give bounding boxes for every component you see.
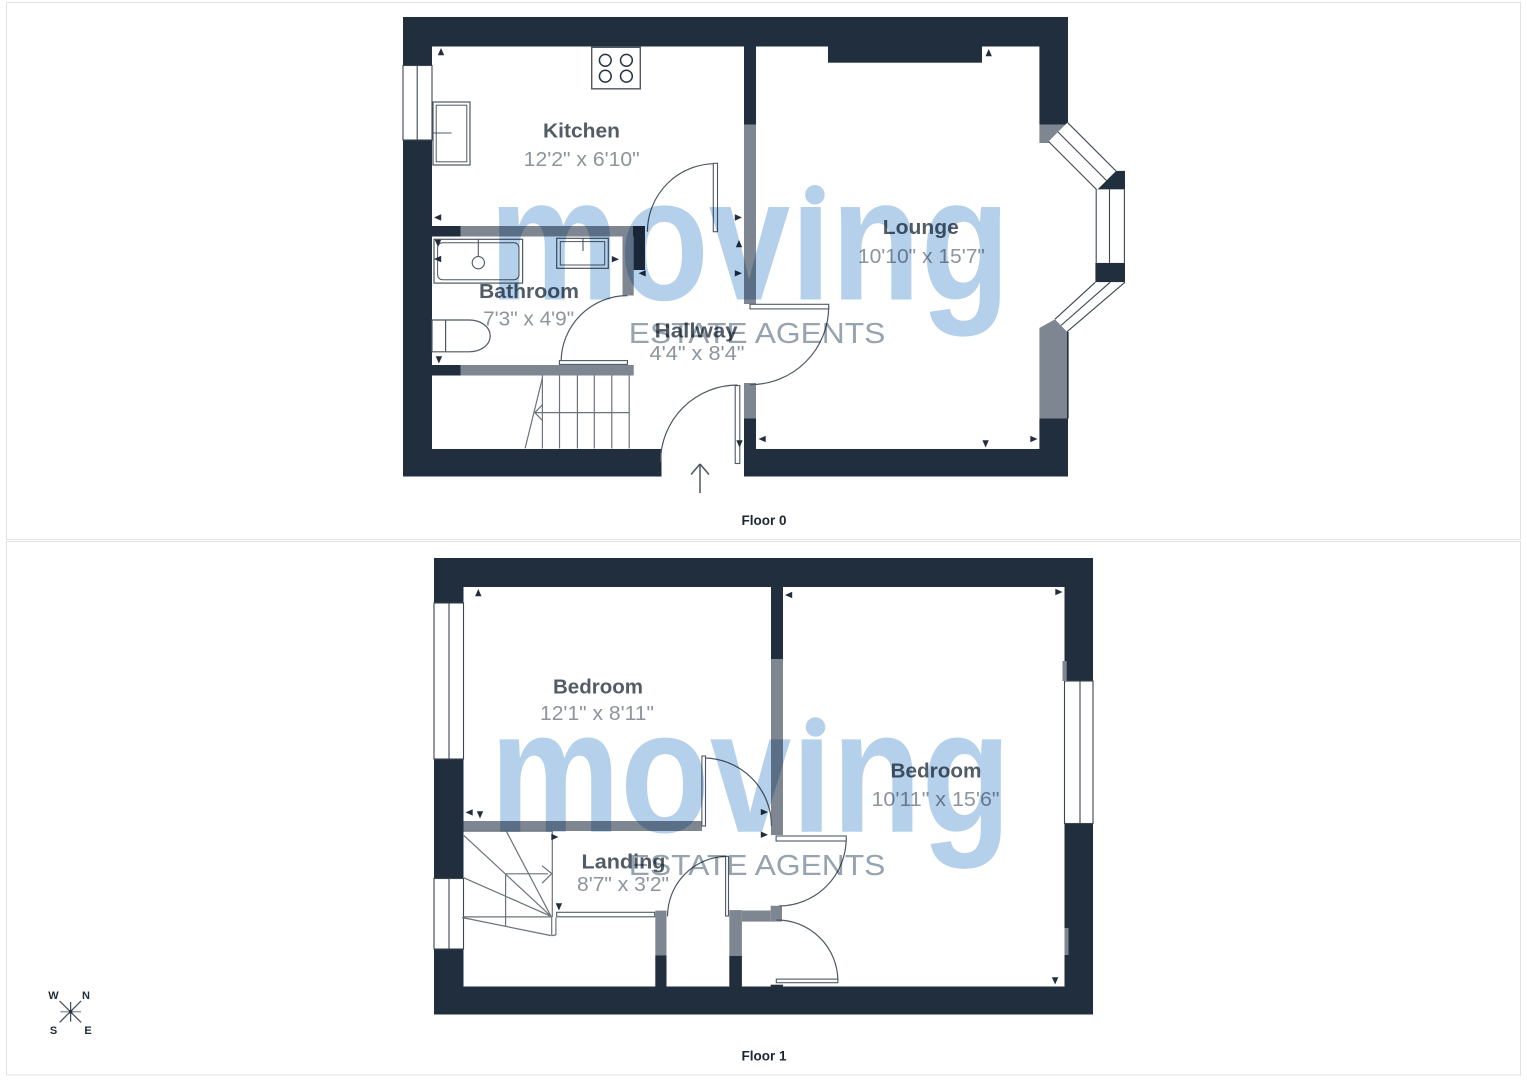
svg-text:ESTATE AGENTS: ESTATE AGENTS [629, 318, 886, 350]
svg-text:movıng: movıng [490, 675, 1011, 870]
svg-text:Kitchen: Kitchen [543, 120, 620, 143]
svg-text:S: S [50, 1025, 57, 1037]
svg-text:W: W [48, 990, 59, 1002]
svg-text:ESTATE AGENTS: ESTATE AGENTS [629, 850, 886, 882]
svg-text:movıng: movıng [489, 143, 1010, 338]
svg-text:N: N [82, 990, 90, 1002]
svg-text:Floor 1: Floor 1 [741, 1048, 786, 1063]
svg-text:E: E [84, 1025, 91, 1037]
svg-text:Floor 0: Floor 0 [741, 513, 786, 528]
